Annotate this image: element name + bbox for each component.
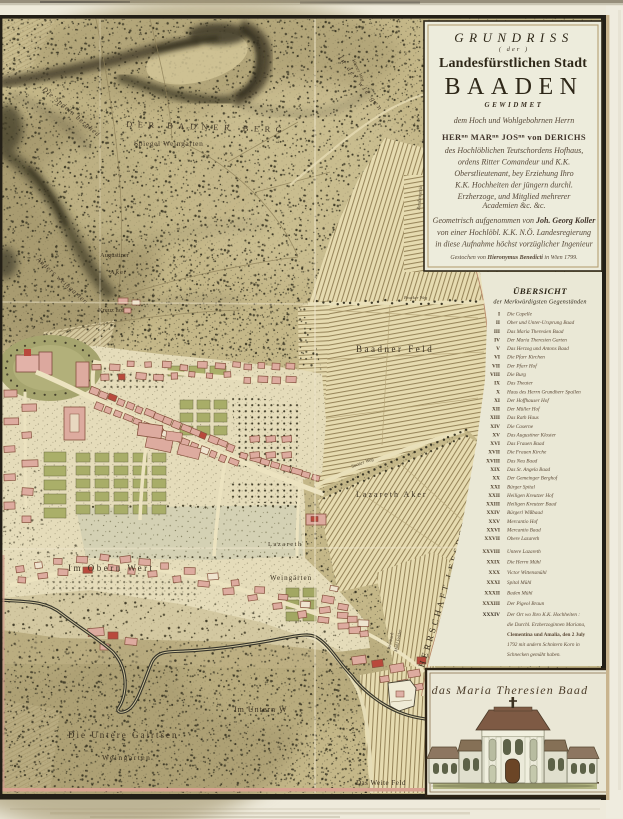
svg-text:XVII: XVII [488,450,500,456]
svg-text:XXIX: XXIX [486,559,500,565]
svg-text:I: I [498,312,500,318]
svg-text:Spiegel Weingarten: Spiegel Weingarten [134,139,203,148]
svg-text:Obere Lazareth: Obere Lazareth [507,536,540,542]
svg-text:die Durchl. Erzherzoginnen Mar: die Durchl. Erzherzoginnen Mariana, [507,622,585,628]
svg-text:Schnecken gemäht haben.: Schnecken gemäht haben. [507,652,561,658]
svg-text:XXIII: XXIII [486,502,500,508]
svg-text:X: X [496,389,500,395]
svg-text:XXVII: XXVII [484,536,500,542]
svg-text:XV: XV [492,433,500,439]
svg-text:Die Untere Gairtsen: Die Untere Gairtsen [68,730,178,740]
svg-text:Der Gemeinger Berghof: Der Gemeinger Berghof [506,475,559,482]
svg-text:Ober und Unter-Ursprung Baad: Ober und Unter-Ursprung Baad [507,320,575,326]
svg-text:Die Capelle: Die Capelle [506,312,533,318]
svg-text:Weingarten: Weingarten [102,753,151,762]
svg-text:Heiligen Kreutzer Hof: Heiligen Kreutzer Hof [506,492,555,499]
svg-text:III: III [494,329,500,335]
svg-text:Heiligen Kreutzer Baad: Heiligen Kreutzer Baad [506,502,557,508]
svg-text:XXVIII: XXVIII [482,549,500,555]
svg-text:Die Frauen Kirche: Die Frauen Kirche [506,450,547,456]
svg-text:VII: VII [492,363,500,369]
svg-text:Untere Lazareth: Untere Lazareth [507,549,541,555]
svg-text:das Maria Theresien Baad: das Maria Theresien Baad [432,683,589,697]
svg-text:Augustiner: Augustiner [100,252,130,259]
svg-text:( der ): ( der ) [499,46,529,53]
svg-text:XXXI: XXXI [486,580,500,586]
svg-text:XXVI: XXVI [486,528,500,534]
svg-text:1792 mit andern Schnitern Korn: 1792 mit andern Schnitern Korn in [507,642,580,648]
svg-text:Lazareth Aker: Lazareth Aker [356,490,428,499]
svg-text:Das Rath Haus: Das Rath Haus [506,415,539,421]
svg-text:XIX: XIX [490,467,500,473]
svg-text:IX: IX [494,381,500,387]
svg-text:des Hochlöblichen Teutschorden: des Hochlöblichen Teutschordens Hofhaus, [445,146,584,155]
svg-text:von einer Hochlöbl. K.K. N.Ö.: von einer Hochlöbl. K.K. N.Ö. Landesregi… [437,228,591,237]
svg-text:Das Weite Feld: Das Weite Feld [356,779,406,787]
svg-text:Das Neu Baad: Das Neu Baad [506,458,538,464]
svg-text:XX: XX [492,476,500,482]
svg-text:XI: XI [494,398,500,404]
svg-text:Im Untern W: Im Untern W [234,705,288,714]
svg-text:der Merkwürdigsten Gegenstände: der Merkwürdigsten Gegenständen [493,299,586,306]
svg-text:ordens Ritter Comandeur und K.: ordens Ritter Comandeur und K.K. [458,158,570,167]
svg-text:Die Pfarr Kirchen: Die Pfarr Kirchen [506,354,545,361]
svg-text:in diese Aufnahme höchst vorzü: in diese Aufnahme höchst vorzüglicher In… [435,240,593,249]
svg-text:XXXII: XXXII [484,591,500,597]
svg-text:Baadner Feld: Baadner Feld [356,344,434,354]
svg-text:dem Hoch und Wohlgebohrnen Her: dem Hoch und Wohlgebohrnen Herrn [454,116,575,125]
svg-text:VI: VI [494,355,500,361]
svg-text:Das Maria Theresien Baad: Das Maria Theresien Baad [506,329,564,335]
svg-text:Aker: Aker [110,269,127,276]
svg-text:XXI: XXI [490,484,500,490]
svg-text:Victor Wittensmühl: Victor Wittensmühl [507,570,547,576]
svg-text:Die Burg: Die Burg [506,372,526,378]
svg-text:HERⁿⁿ MARⁿⁿ JOSⁿⁿ von DERICHS: HERⁿⁿ MARⁿⁿ JOSⁿⁿ von DERICHS [442,132,586,142]
svg-text:Das Augustiner Kloster: Das Augustiner Kloster [506,433,557,439]
svg-text:Der Hoffhauser Hof: Der Hoffhauser Hof [506,397,550,404]
svg-text:IV: IV [494,337,500,343]
svg-text:XXV: XXV [489,519,501,525]
svg-text:Erzherzoge, und Mitglied mehre: Erzherzoge, und Mitglied mehrerer [457,192,572,201]
svg-text:Kreuz hof: Kreuz hof [98,307,125,314]
svg-text:Der Pfarr Hof: Der Pfarr Hof [506,362,538,369]
svg-text:XVI: XVI [490,441,500,447]
svg-text:Die Herrn Mühl: Die Herrn Mühl [506,559,541,565]
svg-text:Der Müller Hof: Der Müller Hof [506,406,541,413]
svg-text:Mercantio Hof: Mercantio Hof [506,518,539,525]
svg-text:Das Frauen Baad: Das Frauen Baad [506,441,545,447]
svg-text:Academien &c. &c.: Academien &c. &c. [481,201,545,210]
svg-text:Die Caserne: Die Caserne [506,424,534,430]
svg-text:Das Theater: Das Theater [506,381,534,387]
svg-text:Der Ort wo Ihro K.K. Hochheite: Der Ort wo Ihro K.K. Hochheiten : [506,612,580,618]
svg-text:ÜBERSICHT: ÜBERSICHT [513,286,567,296]
svg-text:Haus des Herrn Grundherr Spall: Haus des Herrn Grundherr Spallen [506,389,581,395]
svg-text:Das Herzog und Antons Baad: Das Herzog und Antons Baad [506,346,569,352]
svg-text:Clementina und Amalia, den 2 J: Clementina und Amalia, den 2 July [507,632,586,638]
svg-text:XXII: XXII [488,493,500,499]
svg-text:Oberstlieutenant, bey Erziehun: Oberstlieutenant, bey Erziehung Ihro [454,169,573,178]
svg-text:Weingärten: Weingärten [270,574,312,582]
svg-text:BAADEN: BAADEN [445,74,584,100]
svg-text:Spital Mühl: Spital Mühl [507,580,532,586]
svg-text:Bürger Spital: Bürger Spital [507,484,535,490]
svg-text:Gestochen von Hieronymus Bened: Gestochen von Hieronymus Benedicti in Wi… [450,255,577,261]
svg-text:Im Obern Wert: Im Obern Wert [68,563,155,573]
svg-text:Lazareth: Lazareth [268,541,303,548]
svg-text:Das St. Angela Baad: Das St. Angela Baad [506,467,551,473]
svg-text:GRUNDRISS: GRUNDRISS [454,30,574,45]
svg-text:V: V [496,346,500,352]
svg-text:XXX: XXX [489,570,501,576]
svg-text:XXXIV: XXXIV [483,612,501,618]
svg-text:Landesfürstlichen Stadt: Landesfürstlichen Stadt [439,56,587,71]
svg-text:XXIV: XXIV [486,510,500,516]
svg-text:VIII: VIII [490,372,500,378]
svg-text:Geometrisch aufgenommen von Jo: Geometrisch aufgenommen von Joh. Georg K… [433,216,597,225]
svg-text:II: II [496,320,500,326]
svg-text:Der Maria Theresien Garten: Der Maria Theresien Garten [506,337,567,343]
svg-text:XII: XII [492,407,500,413]
svg-text:GEWIDMET: GEWIDMET [485,101,544,109]
svg-text:Brucker Weg: Brucker Weg [404,295,428,300]
svg-text:XXXIII: XXXIII [482,601,500,607]
svg-text:Der Pigeol Braun: Der Pigeol Braun [506,601,545,607]
svg-text:K.K. Hochheiten der jüngern du: K.K. Hochheiten der jüngern durchl. [454,181,573,190]
svg-text:Mercantio Baad: Mercantio Baad [506,528,541,534]
svg-text:XIV: XIV [490,424,500,430]
svg-text:Bürgerl Wißbaad: Bürgerl Wißbaad [507,509,543,516]
svg-text:Baden Mühl: Baden Mühl [507,591,533,597]
svg-text:XIII: XIII [490,415,500,421]
svg-text:XVIII: XVIII [486,458,500,464]
